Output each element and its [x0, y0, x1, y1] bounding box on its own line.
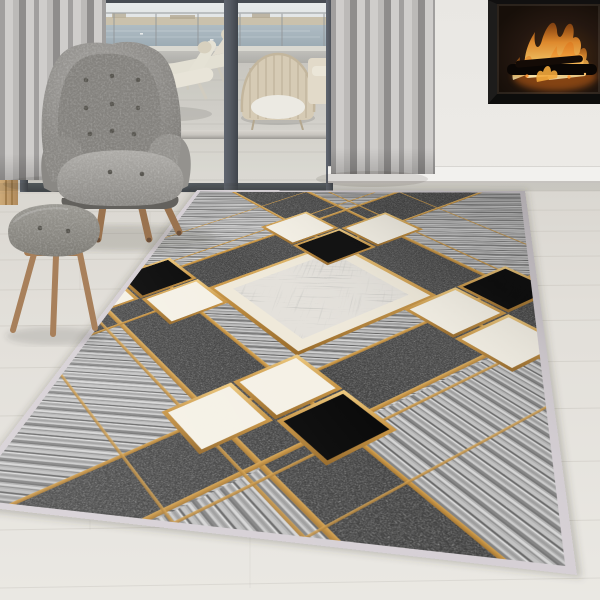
living-room-rug-photo: [0, 0, 600, 600]
fireplace: [488, 0, 600, 104]
curtain-left: [0, 0, 106, 180]
fire: [497, 4, 600, 94]
door-mullion: [224, 0, 238, 192]
curtain-center: [331, 0, 435, 174]
